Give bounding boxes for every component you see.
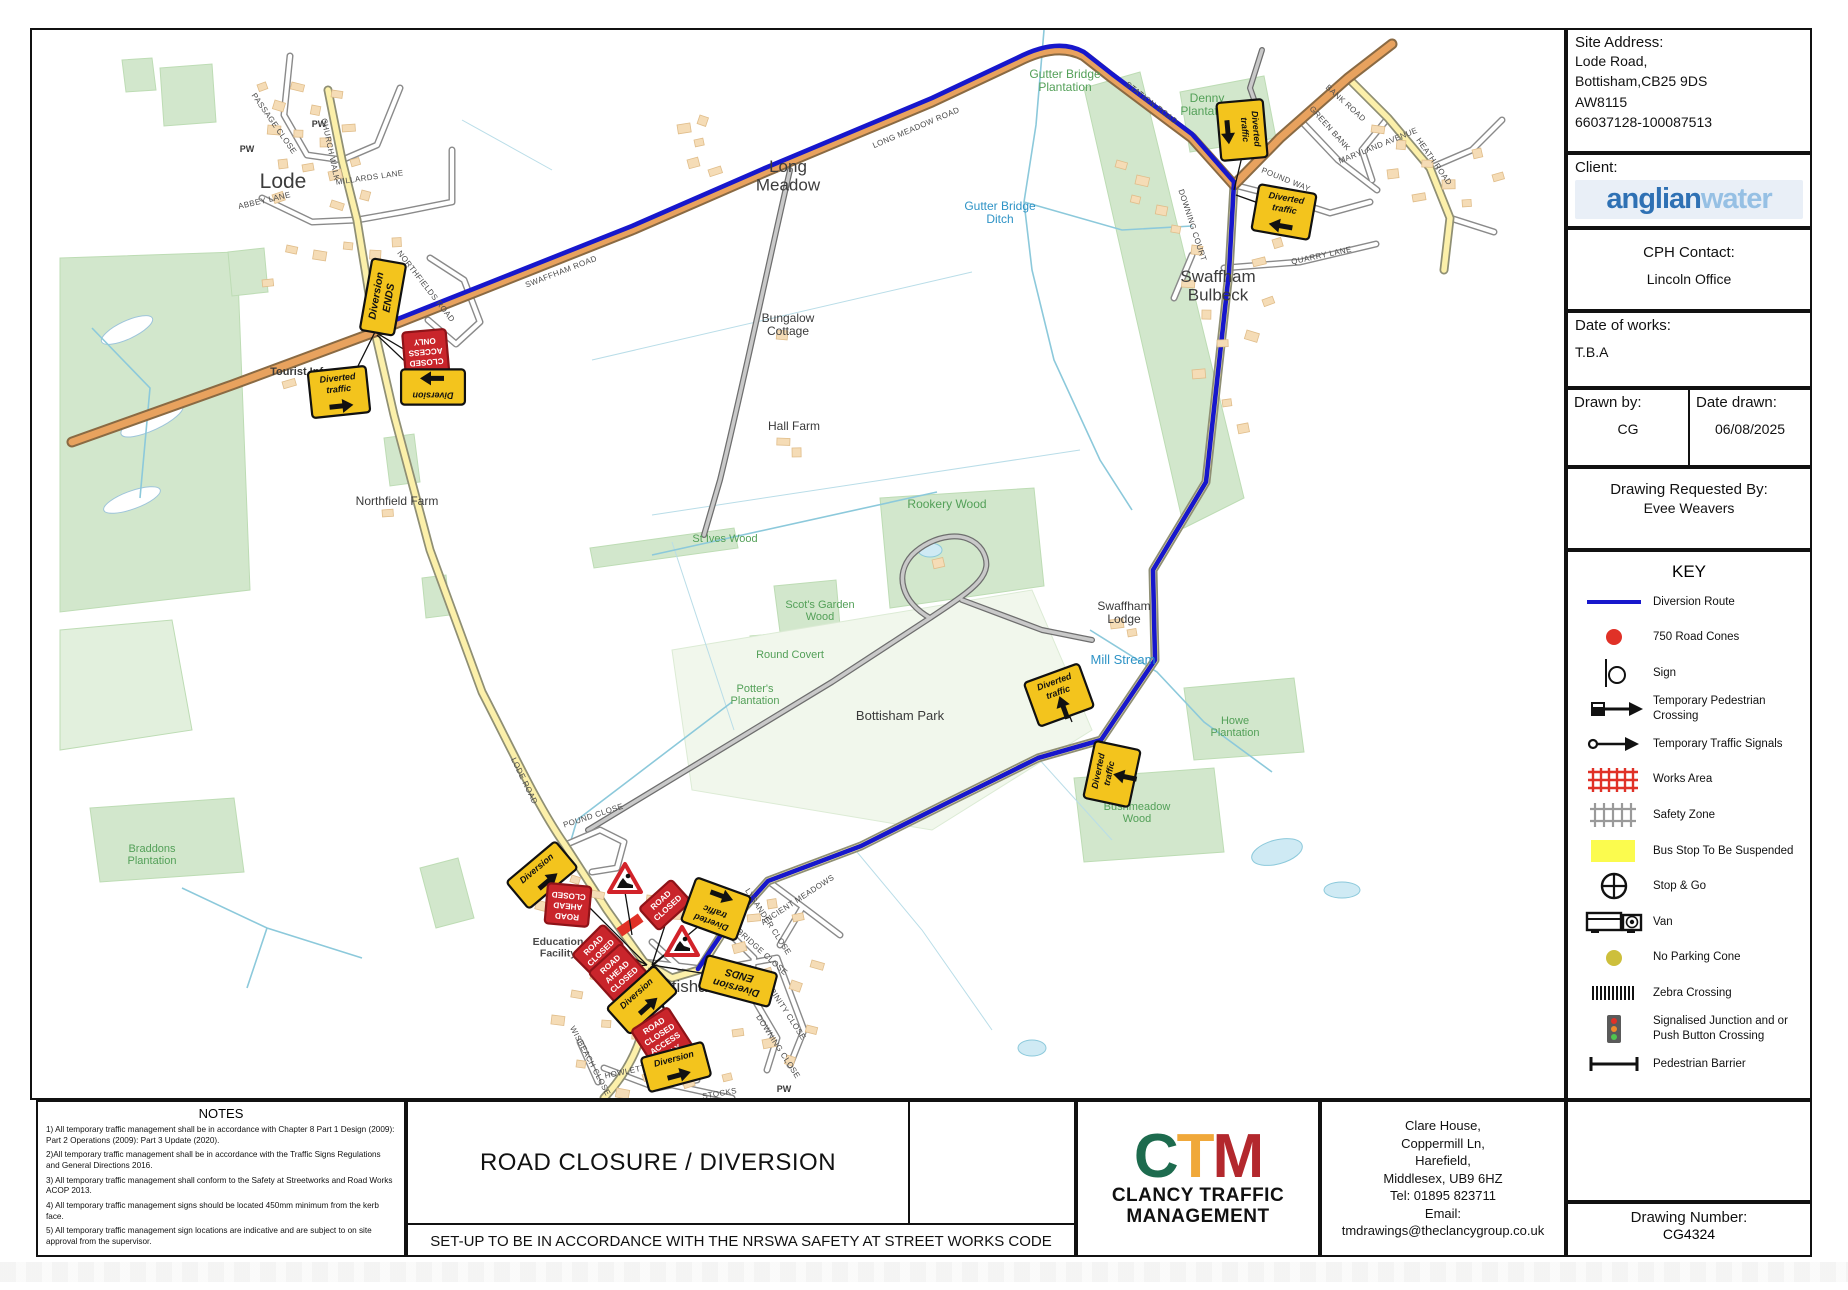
key-item-label: 750 Road Cones (1653, 630, 1739, 644)
map-canvas: LodeLongMeadowSwaffhamBulbeckBottishamBu… (32, 30, 1564, 1098)
map-label: Round Covert (756, 649, 824, 661)
key-item: Stop & Go (1575, 869, 1803, 905)
date-of-works-box: Date of works: T.B.A (1566, 311, 1812, 388)
requested-by-label: Drawing Requested By: (1575, 481, 1803, 498)
title-block-panel: Site Address: Lode Road,Bottisham,CB25 9… (1566, 28, 1812, 1257)
drawn-by-cell: Drawn by: CG (1568, 390, 1690, 465)
key-box: KEY Diversion Route750 Road ConesSignTem… (1566, 550, 1812, 1100)
map-label: BraddonsPlantation (128, 843, 177, 867)
drawn-by-label: Drawn by: (1574, 394, 1682, 411)
map-label: St Ives Wood (692, 533, 757, 545)
works-area-icon (1575, 765, 1653, 795)
company-name-line2: MANAGEMENT (1112, 1206, 1284, 1228)
map-label: SwaffhamLodge (1097, 599, 1150, 626)
key-item: Safety Zone (1575, 797, 1803, 833)
diversion-sign: Divertedtraffic (308, 366, 371, 418)
requested-by-value: Evee Weavers (1575, 500, 1803, 516)
site-address-value: Lode Road,Bottisham,CB25 9DSAW8115660371… (1575, 51, 1803, 132)
cph-contact-box: CPH Contact: Lincoln Office (1566, 228, 1812, 311)
cph-contact-label: CPH Contact: (1575, 244, 1803, 261)
road-cones-icon (1575, 622, 1653, 652)
map-label: Bottisham Park (856, 708, 945, 723)
key-item: Zebra Crossing (1575, 975, 1803, 1011)
key-item-label: No Parking Cone (1653, 950, 1741, 964)
map: LodeLongMeadowSwaffhamBulbeckBottishamBu… (30, 28, 1566, 1100)
anglian-water-logo-part1: anglian (1606, 183, 1701, 215)
notes-list: 1) All temporary traffic management shal… (46, 1125, 396, 1248)
drawing-number-label: Drawing Number: (1575, 1209, 1803, 1226)
stop-go-icon (1575, 871, 1653, 901)
client-box: Client: anglianwater (1566, 153, 1812, 228)
key-item-label: Works Area (1653, 772, 1712, 786)
van-icon (1575, 907, 1653, 937)
ctm-logo: CTM (1134, 1129, 1262, 1185)
map-label: Mill Stream (1090, 652, 1155, 667)
key-item: Sign (1575, 655, 1803, 691)
notes-title: NOTES (46, 1106, 396, 1121)
compliance-note: SET-UP TO BE IN ACCORDANCE WITH THE NRSW… (408, 1223, 1074, 1257)
bus-stop-icon (1575, 836, 1653, 866)
company-address-box: Clare House,Coppermill Ln,Harefield,Midd… (1320, 1100, 1566, 1257)
key-item-label: Temporary Pedestrian Crossing (1653, 694, 1803, 723)
zebra-crossing-icon (1575, 978, 1653, 1008)
map-label: Gutter BridgeDitch (964, 199, 1036, 226)
drawing-title-box: ROAD CLOSURE / DIVERSION SET-UP TO BE IN… (406, 1100, 1076, 1257)
key-item: Temporary Traffic Signals (1575, 726, 1803, 762)
map-label: Lode (260, 170, 307, 193)
key-item: Temporary Pedestrian Crossing (1575, 691, 1803, 727)
key-item-label: Sign (1653, 666, 1676, 680)
key-items: Diversion Route750 Road ConesSignTempora… (1575, 584, 1803, 1082)
sign-icon (1575, 658, 1653, 688)
ctm-letter-t: T (1177, 1122, 1213, 1191)
ctm-logo-box: CTM CLANCY TRAFFIC MANAGEMENT (1076, 1100, 1320, 1257)
note-item: 3) All temporary traffic management shal… (46, 1176, 396, 1197)
drawing-number-value: CG4324 (1575, 1226, 1803, 1242)
key-item-label: Safety Zone (1653, 808, 1715, 822)
safety-zone-icon (1575, 800, 1653, 830)
key-title: KEY (1575, 562, 1803, 582)
key-item: No Parking Cone (1575, 940, 1803, 976)
svg-text:Diversion: Diversion (412, 391, 454, 401)
date-drawn-value: 06/08/2025 (1696, 421, 1804, 437)
date-of-works-label: Date of works: (1575, 317, 1803, 334)
note-item: 5) All temporary traffic management sign… (46, 1226, 396, 1247)
road-closed-sign: ROADAHEADCLOSED (545, 883, 592, 927)
road-name-label: QUARRY LANE (1290, 245, 1352, 267)
site-address-box: Site Address: Lode Road,Bottisham,CB25 9… (1566, 28, 1812, 153)
ctm-letter-c: C (1134, 1122, 1177, 1191)
scan-texture (0, 1262, 1848, 1282)
no-parking-cone-icon (1575, 943, 1653, 973)
drawing-page: LodeLongMeadowSwaffhamBulbeckBottishamBu… (30, 28, 1812, 1257)
map-label: SwaffhamBulbeck (1180, 267, 1255, 305)
notes-box: NOTES 1) All temporary traffic managemen… (36, 1100, 406, 1257)
road-closed-sign: ROADCLOSED (639, 879, 691, 930)
key-item-label: Temporary Traffic Signals (1653, 737, 1783, 751)
note-item: 2)All temporary traffic management shall… (46, 1150, 396, 1171)
diversion-route-icon (1575, 587, 1653, 617)
diversion-sign: Divertedtraffic (1251, 184, 1316, 240)
note-item: 1) All temporary traffic management shal… (46, 1125, 396, 1146)
map-label: BungalowCottage (762, 311, 815, 338)
key-item: Works Area (1575, 762, 1803, 798)
temp-traffic-signals-icon (1575, 729, 1653, 759)
map-label: Potter'sPlantation (731, 683, 780, 707)
map-label: Northfield Farm (356, 494, 439, 508)
drawing-number-box: Drawing Number: CG4324 (1566, 1202, 1812, 1257)
drawing-title: ROAD CLOSURE / DIVERSION (480, 1149, 836, 1177)
signalised-junction-icon (1575, 1014, 1653, 1044)
minor-roads-casing (262, 56, 1502, 1098)
requested-by-box: Drawing Requested By: Evee Weavers (1566, 467, 1812, 550)
map-label: PW (777, 1084, 792, 1094)
key-item: Bus Stop To Be Suspended (1575, 833, 1803, 869)
anglian-water-logo: anglianwater (1575, 180, 1803, 219)
date-drawn-label: Date drawn: (1696, 394, 1804, 411)
key-item-label: Bus Stop To Be Suspended (1653, 844, 1793, 858)
road-name-label: GREEN BANK (1308, 104, 1353, 152)
diversion-sign: Divertedtraffic (1216, 99, 1267, 161)
key-item: Pedestrian Barrier (1575, 1047, 1803, 1083)
minor-roads-fill (262, 56, 1502, 1098)
company-name-line1: CLANCY TRAFFIC (1112, 1185, 1284, 1207)
pedestrian-barrier-icon (1575, 1049, 1653, 1079)
key-item-label: Van (1653, 915, 1673, 929)
key-item-label: Signalised Junction and or Push Button C… (1653, 1014, 1803, 1043)
date-of-works-value: T.B.A (1575, 344, 1803, 360)
drawn-by-box: Drawn by: CG Date drawn: 06/08/2025 (1566, 388, 1812, 467)
temp-ped-crossing-icon (1575, 694, 1653, 724)
cph-contact-value: Lincoln Office (1575, 271, 1803, 287)
client-label: Client: (1575, 159, 1803, 176)
key-item-label: Pedestrian Barrier (1653, 1057, 1746, 1071)
diversion-sign: Diversion (401, 369, 465, 404)
map-label: Hall Farm (768, 419, 820, 433)
key-item-label: Diversion Route (1653, 595, 1735, 609)
drawn-by-value: CG (1574, 421, 1682, 437)
company-address: Clare House,Coppermill Ln,Harefield,Midd… (1342, 1117, 1545, 1240)
map-label: Rookery Wood (907, 497, 986, 511)
road-name-label: WISBEACH CLOSE (568, 1024, 612, 1097)
spare-box (1566, 1100, 1812, 1202)
key-item-label: Zebra Crossing (1653, 986, 1732, 1000)
road-name-label: LODE ROAD (509, 756, 539, 806)
key-item: Diversion Route (1575, 584, 1803, 620)
key-item: Signalised Junction and or Push Button C… (1575, 1011, 1803, 1047)
key-item: Van (1575, 904, 1803, 940)
map-label: LongMeadow (756, 157, 821, 195)
key-item: 750 Road Cones (1575, 620, 1803, 656)
note-item: 4) All temporary traffic management sign… (46, 1201, 396, 1222)
site-address-label: Site Address: (1575, 34, 1803, 51)
date-drawn-cell: Date drawn: 06/08/2025 (1690, 390, 1810, 465)
anglian-water-logo-part2: water (1701, 183, 1772, 215)
map-label: Gutter BridgePlantation (1029, 67, 1101, 94)
map-label: PW (240, 144, 255, 154)
ctm-letter-m: M (1213, 1122, 1263, 1191)
key-item-label: Stop & Go (1653, 879, 1706, 893)
